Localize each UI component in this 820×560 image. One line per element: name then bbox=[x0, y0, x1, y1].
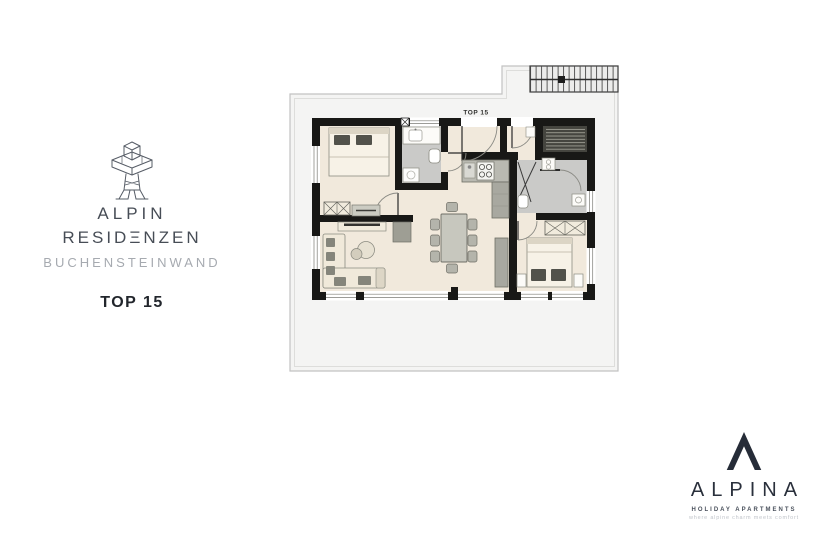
floor-plan: TOP 15 bbox=[285, 55, 630, 385]
footer-logo: ALPINA HOLIDAY APARTMENTS where alpine c… bbox=[664, 430, 820, 521]
wardrobe-2 bbox=[545, 221, 585, 235]
cooktop bbox=[477, 162, 494, 180]
external-staircase bbox=[530, 66, 618, 92]
footer-brand-name: ALPINA bbox=[664, 479, 820, 502]
brand-line-residenzen: RESIDΞNZEN bbox=[0, 228, 264, 248]
brand-panel: ALPIN RESIDΞNZEN BUCHENSTEINWAND TOP 15 bbox=[0, 140, 264, 312]
floor-plan-svg: TOP 15 bbox=[285, 55, 630, 380]
tv-console bbox=[338, 222, 386, 231]
plan-unit-label: TOP 15 bbox=[463, 110, 488, 117]
footer-tagline: where alpine charm meets comfort bbox=[664, 515, 820, 521]
tv bbox=[344, 224, 380, 227]
column bbox=[393, 222, 411, 242]
wardrobe-1 bbox=[324, 202, 350, 215]
vestibule-cabinet bbox=[526, 127, 535, 137]
footer-subtitle: HOLIDAY APARTMENTS bbox=[664, 507, 820, 513]
unit-label: TOP 15 bbox=[0, 294, 264, 312]
brand-line-buchensteinwand: BUCHENSTEINWAND bbox=[0, 255, 264, 270]
hall-cabinet bbox=[495, 238, 508, 287]
jakobskreuz-wireframe-icon bbox=[94, 140, 170, 202]
brand-line-alpin: ALPIN bbox=[0, 204, 264, 224]
alpina-lambda-icon bbox=[725, 430, 763, 472]
page: ALPIN RESIDΞNZEN BUCHENSTEINWAND TOP 15 bbox=[0, 0, 820, 560]
sideboard-1 bbox=[352, 205, 380, 216]
